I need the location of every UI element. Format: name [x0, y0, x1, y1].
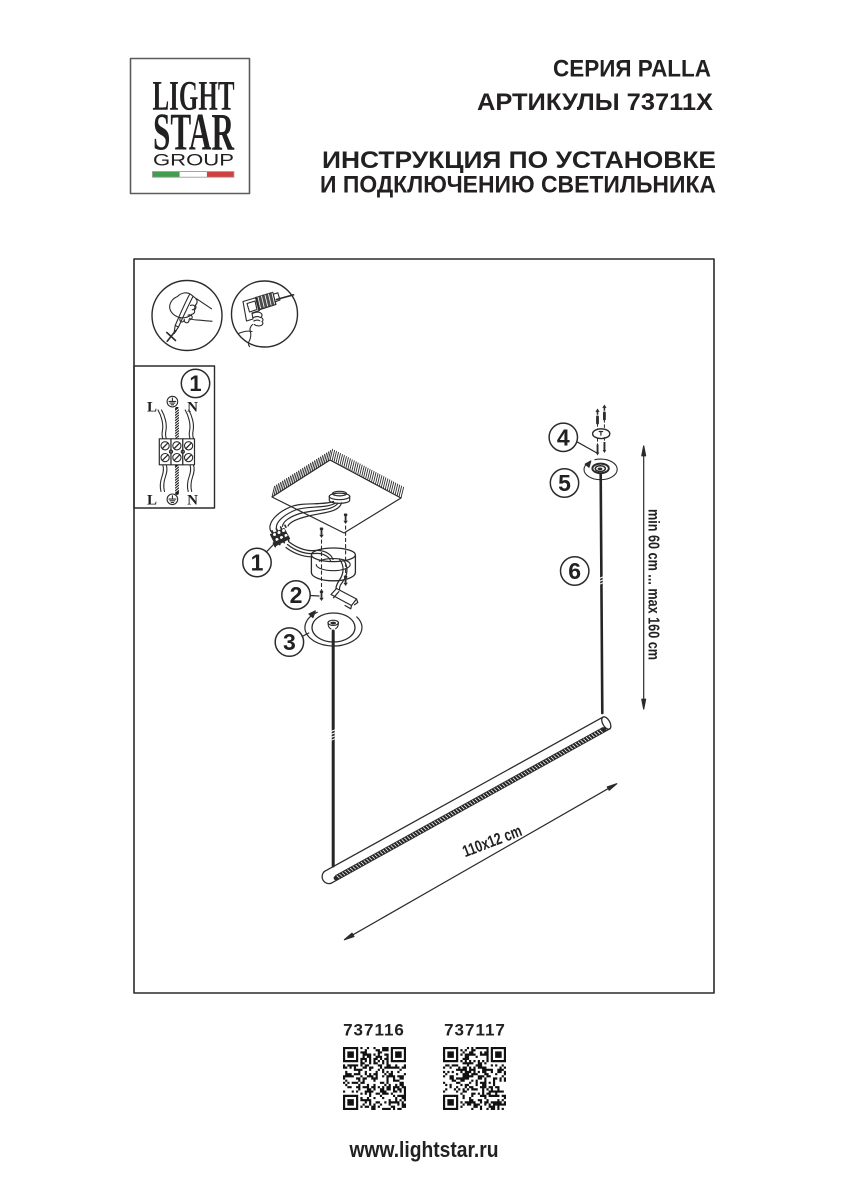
- svg-text:3: 3: [283, 629, 296, 655]
- svg-text:1: 1: [189, 371, 201, 396]
- svg-text:1: 1: [251, 550, 264, 576]
- svg-text:GROUP: GROUP: [153, 150, 234, 169]
- svg-text:И ПОДКЛЮЧЕНИЮ СВЕТИЛЬНИКА: И ПОДКЛЮЧЕНИЮ СВЕТИЛЬНИКА: [320, 172, 716, 199]
- svg-text:N: N: [187, 400, 198, 416]
- svg-text:СЕРИЯ PALLA: СЕРИЯ PALLA: [553, 56, 711, 83]
- svg-text:4: 4: [557, 424, 570, 450]
- svg-text:N: N: [187, 493, 198, 509]
- svg-text:5: 5: [558, 470, 571, 496]
- svg-text:АРТИКУЛЫ 73711X: АРТИКУЛЫ 73711X: [477, 89, 713, 116]
- svg-text:ИНСТРУКЦИЯ ПО УСТАНОВКЕ: ИНСТРУКЦИЯ ПО УСТАНОВКЕ: [322, 147, 716, 174]
- svg-text:L: L: [147, 400, 157, 416]
- svg-text:2: 2: [290, 582, 303, 608]
- svg-text:737117: 737117: [444, 1020, 506, 1039]
- svg-text:6: 6: [568, 558, 581, 584]
- svg-text:min 60 cm ... max 160 cm: min 60 cm ... max 160 cm: [645, 509, 662, 660]
- svg-text:737116: 737116: [343, 1020, 405, 1039]
- svg-text:L: L: [147, 493, 157, 509]
- svg-text:www.lightstar.ru: www.lightstar.ru: [349, 1137, 499, 1162]
